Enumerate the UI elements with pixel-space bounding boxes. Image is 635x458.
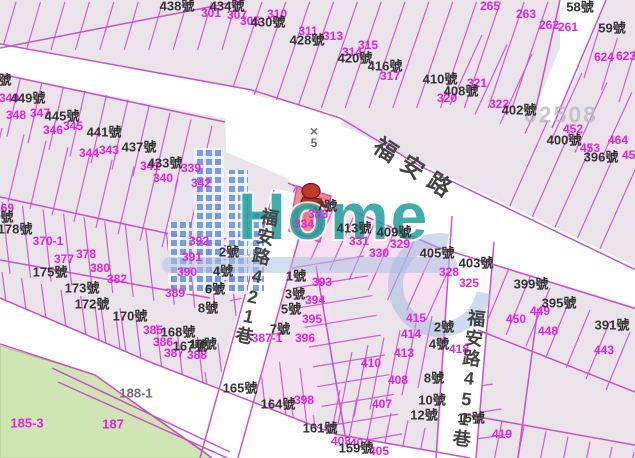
map-canvas[interactable]: Home × 5 02508 3013073053103113133143153… (0, 0, 635, 458)
watermark-home-text: Home (238, 183, 429, 249)
